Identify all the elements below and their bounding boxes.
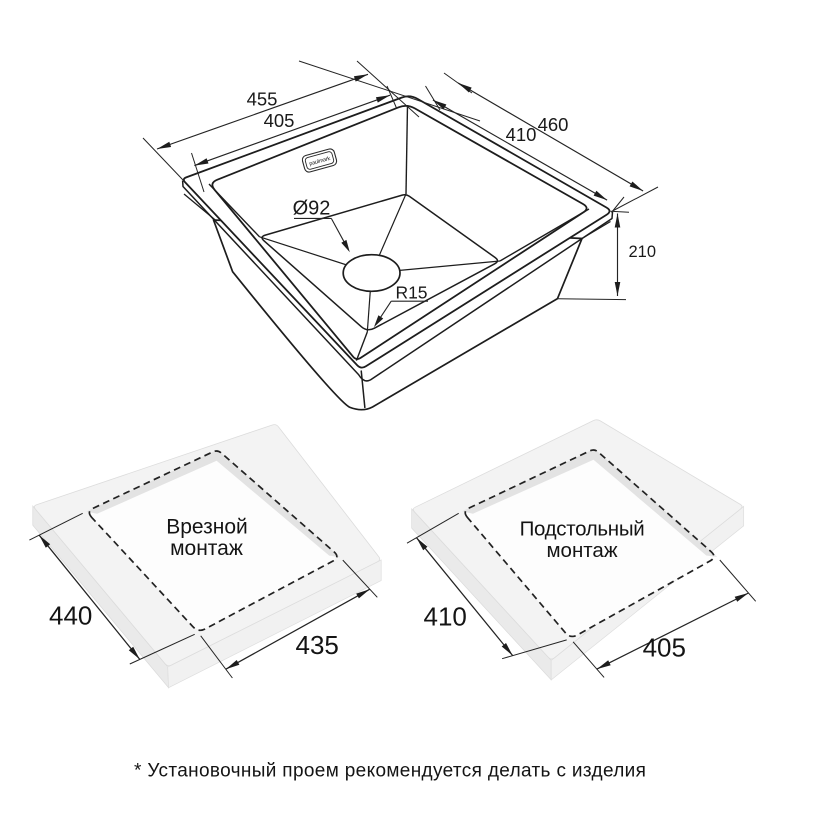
svg-text:Ø92: Ø92 xyxy=(293,198,331,220)
svg-text:210: 210 xyxy=(629,243,657,261)
svg-text:410: 410 xyxy=(424,602,467,632)
svg-text:Врезной: Врезной xyxy=(166,515,248,538)
svg-text:405: 405 xyxy=(643,633,686,663)
svg-text:Подстольный: Подстольный xyxy=(520,517,645,540)
svg-text:R15: R15 xyxy=(395,283,427,303)
svg-text:440: 440 xyxy=(49,601,92,631)
svg-text:410: 410 xyxy=(506,124,537,145)
svg-text:* Установочный проем рекоменду: * Установочный проем рекомендуется делат… xyxy=(134,761,646,782)
svg-text:435: 435 xyxy=(296,630,339,660)
svg-text:монтаж: монтаж xyxy=(546,539,617,562)
svg-text:460: 460 xyxy=(538,114,569,135)
svg-text:монтаж: монтаж xyxy=(170,537,243,560)
svg-text:405: 405 xyxy=(264,110,295,131)
svg-text:455: 455 xyxy=(247,88,278,109)
